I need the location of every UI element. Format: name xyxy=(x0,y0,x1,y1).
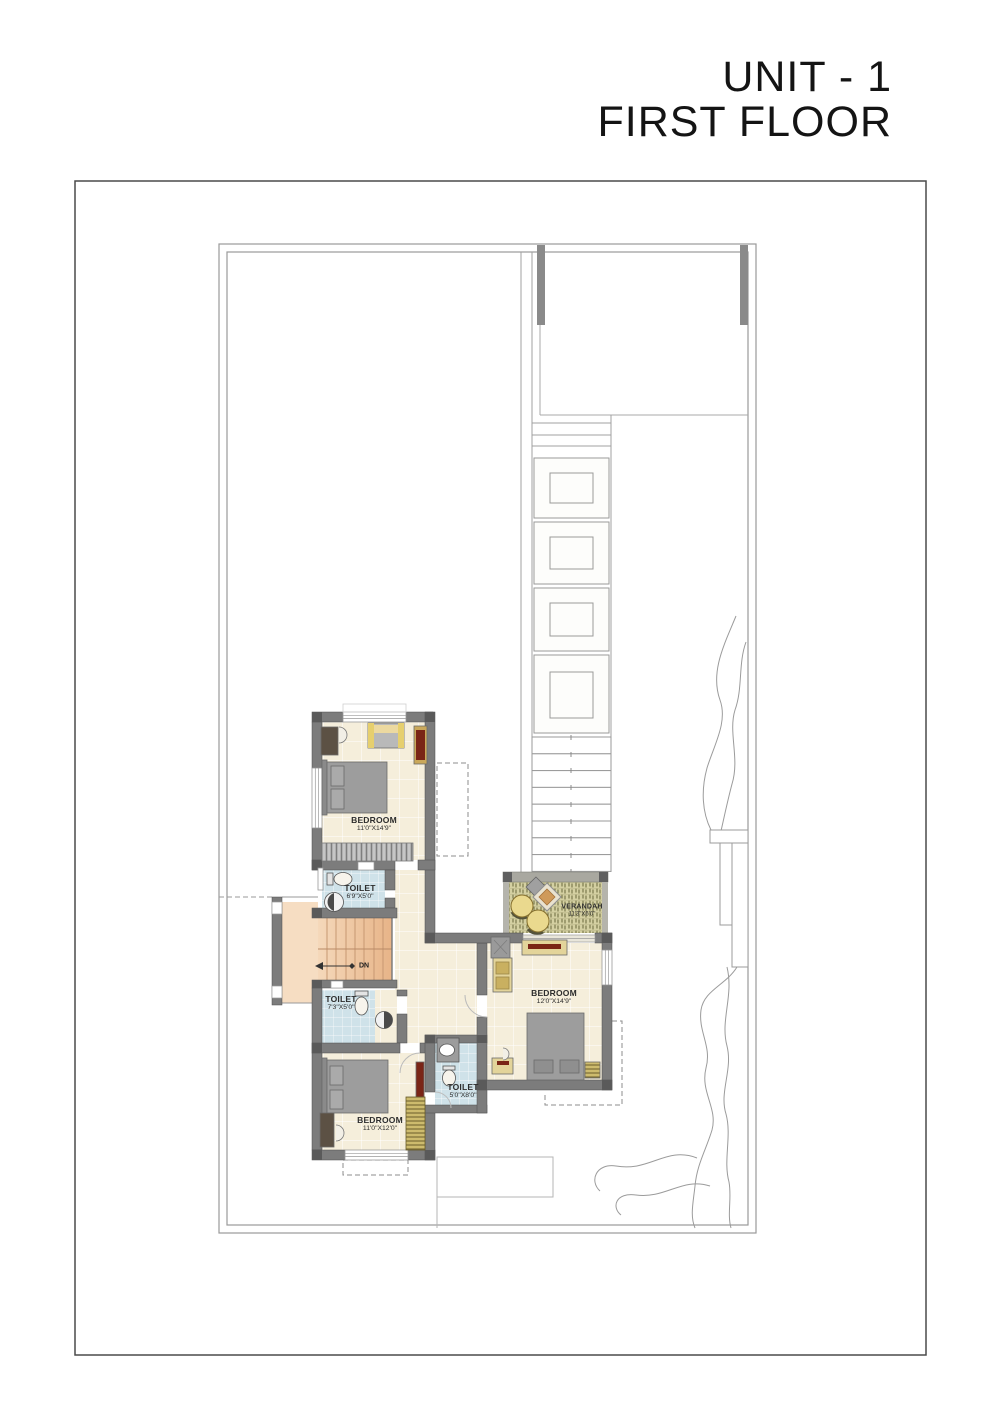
gate-post-right xyxy=(740,245,748,325)
vent-toilet-1 xyxy=(358,862,374,870)
pillow xyxy=(560,1060,579,1073)
room-name: TOILET xyxy=(325,994,356,1004)
wc-tank xyxy=(327,873,333,885)
title-floor: FIRST FLOOR xyxy=(597,100,892,145)
basin-toilet-3 xyxy=(440,1044,455,1056)
room-dims: 6'9"X5'0" xyxy=(344,893,375,901)
room-dims: 11'0"X12'0" xyxy=(357,1125,403,1133)
room-name: TOILET xyxy=(344,883,375,893)
stair-dn-label: DN xyxy=(359,963,369,970)
floor-plan-drawing xyxy=(0,0,1000,1415)
wc-tank xyxy=(355,991,368,996)
room-name: BEDROOM xyxy=(357,1115,403,1125)
room-dims: 5'0"X8'0" xyxy=(447,1092,478,1100)
window-bedroom-top xyxy=(343,704,406,722)
drawing-title: UNIT - 1 FIRST FLOOR xyxy=(597,55,892,144)
room-label-toilet-3: TOILET 5'0"X8'0" xyxy=(447,1082,478,1100)
floor-plan-sheet: UNIT - 1 FIRST FLOOR BEDROOM 11'0"X14'9"… xyxy=(0,0,1000,1415)
walkway-steps xyxy=(532,735,611,874)
room-dims: 11'0"X14'9" xyxy=(351,825,397,833)
tv xyxy=(528,944,561,949)
room-label-toilet-1: TOILET 6'9"X5'0" xyxy=(344,883,375,901)
window-bedroom-bottom xyxy=(345,1150,408,1160)
room-name: VERANDAH xyxy=(561,903,602,911)
patio-chair-2 xyxy=(527,910,549,932)
shelf xyxy=(416,1062,424,1097)
wardrobe xyxy=(322,843,413,861)
room-label-bedroom-bottom: BEDROOM 11'0"X12'0" xyxy=(357,1115,403,1133)
room-label-bedroom-top: BEDROOM 11'0"X14'9" xyxy=(351,815,397,833)
title-unit: UNIT - 1 xyxy=(597,55,892,100)
wardrobe xyxy=(406,1097,425,1150)
pillow xyxy=(331,789,344,809)
room-name: BEDROOM xyxy=(531,988,577,998)
window-bedroom-top-left xyxy=(312,768,322,828)
dresser xyxy=(321,727,338,755)
room-dims: 7'3"X5'0" xyxy=(325,1004,356,1012)
boundary-pilaster xyxy=(710,830,748,967)
courtyard xyxy=(537,245,748,415)
page-border xyxy=(75,181,926,1355)
pillow xyxy=(331,766,344,786)
dressing-table xyxy=(492,1058,513,1074)
bench xyxy=(585,1062,600,1078)
gate-post-left xyxy=(537,245,545,325)
wc-toilet-2 xyxy=(355,997,368,1015)
pillow xyxy=(534,1060,553,1073)
window-bedroom-right xyxy=(602,950,612,985)
room-name: TOILET xyxy=(447,1082,478,1092)
pillow xyxy=(330,1090,343,1109)
room-label-toilet-2: TOILET 7'3"X5'0" xyxy=(325,994,356,1012)
headboard xyxy=(322,760,327,815)
room-dims: 11'3"X6'0" xyxy=(561,912,602,919)
vent-toilet-2 xyxy=(331,981,343,988)
dresser xyxy=(320,1113,334,1147)
room-label-bedroom-right: BEDROOM 12'0"X14'9" xyxy=(531,988,577,1006)
skylight-planters xyxy=(534,458,609,733)
wc-tank xyxy=(443,1066,455,1070)
room-dims: 12'0"X14'9" xyxy=(531,998,577,1006)
pillow xyxy=(330,1066,343,1085)
room-name: BEDROOM xyxy=(351,815,397,825)
room-label-verandah: VERANDAH 11'3"X6'0" xyxy=(561,903,602,918)
floor-hall xyxy=(395,870,477,1043)
